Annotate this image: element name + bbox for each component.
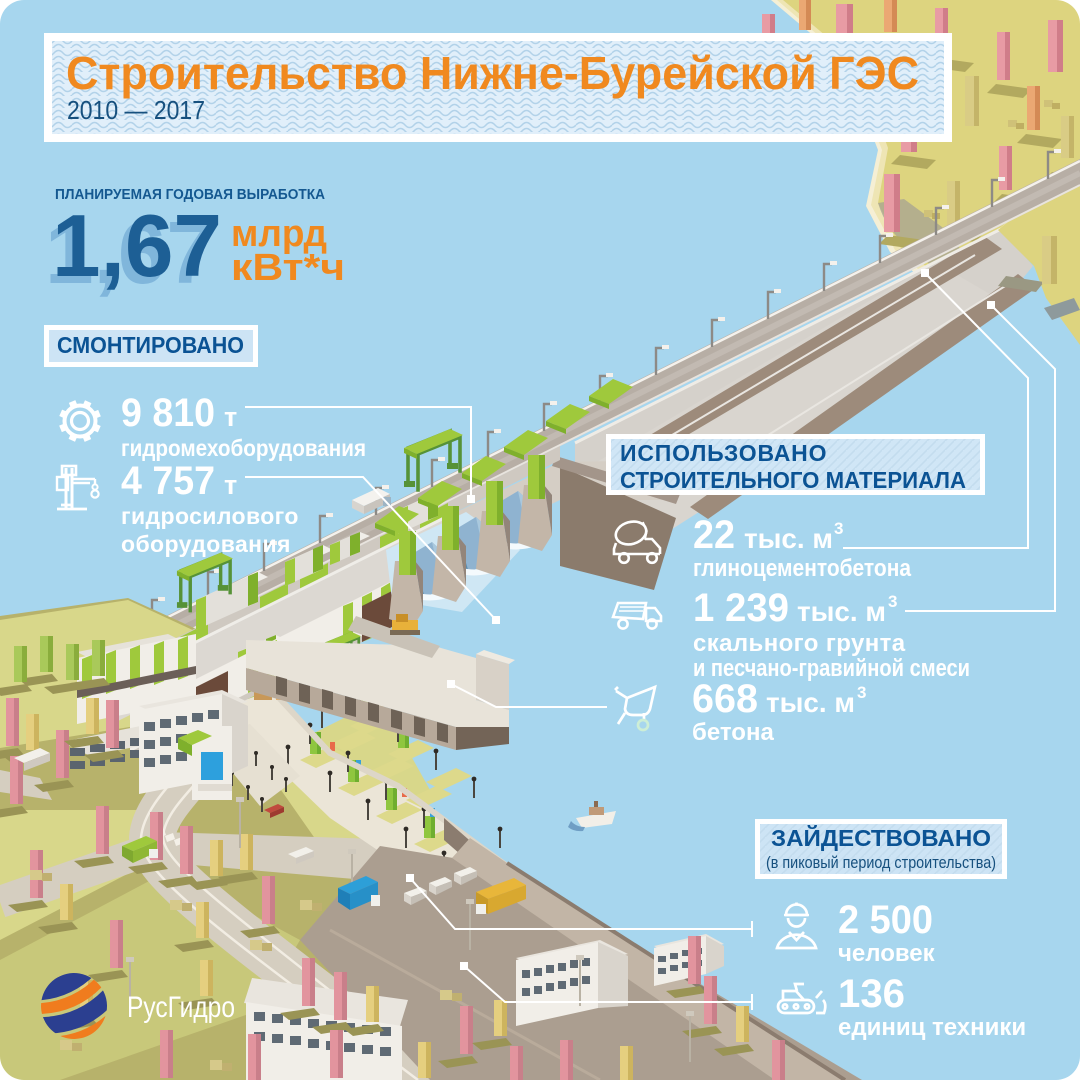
svg-text:гидромехоборудования: гидромехоборудования	[121, 435, 366, 461]
svg-text:22: 22	[693, 513, 735, 557]
svg-text:2 500: 2 500	[838, 898, 933, 942]
svg-text:3: 3	[888, 592, 897, 611]
svg-text:1 239: 1 239	[693, 586, 789, 630]
svg-text:ЗАЙДЕСТВОВАНО: ЗАЙДЕСТВОВАНО	[771, 824, 991, 851]
svg-text:т: т	[224, 402, 237, 432]
svg-text:глиноцементобетона: глиноцементобетона	[693, 555, 912, 582]
svg-text:единиц техники: единиц техники	[838, 1014, 1026, 1041]
svg-text:Строительство Нижне-Бурейской: Строительство Нижне-Бурейской ГЭС	[66, 47, 919, 99]
svg-text:ИСПОЛЬЗОВАНО: ИСПОЛЬЗОВАНО	[620, 440, 827, 466]
svg-text:2010 — 2017: 2010 — 2017	[67, 95, 205, 125]
svg-text:скального грунта: скального грунта	[693, 630, 906, 657]
svg-text:тыс. м: тыс. м	[744, 523, 833, 554]
svg-text:бетона: бетона	[692, 719, 774, 746]
svg-text:т: т	[224, 470, 237, 500]
svg-text:кВт*ч: кВт*ч	[231, 247, 345, 289]
svg-text:4 757: 4 757	[121, 459, 215, 503]
svg-text:РусГидро: РусГидро	[127, 991, 235, 1024]
svg-text:9 810: 9 810	[121, 391, 215, 435]
svg-text:3: 3	[834, 519, 843, 538]
svg-text:СМОНТИРОВАНО: СМОНТИРОВАНО	[57, 332, 244, 358]
svg-text:СТРОИТЕЛЬНОГО МАТЕРИАЛА: СТРОИТЕЛЬНОГО МАТЕРИАЛА	[620, 467, 966, 493]
svg-text:3: 3	[857, 683, 866, 702]
svg-text:тыс. м: тыс. м	[766, 687, 855, 718]
svg-text:человек: человек	[838, 940, 936, 967]
svg-text:тыс. м: тыс. м	[797, 596, 886, 627]
svg-text:668: 668	[692, 677, 758, 721]
svg-text:гидросилового: гидросилового	[121, 503, 299, 529]
svg-text:1,67: 1,67	[52, 196, 222, 295]
svg-text:136: 136	[838, 972, 905, 1016]
svg-text:оборудования: оборудования	[121, 531, 291, 557]
svg-text:(в пиковый период строительств: (в пиковый период строительства)	[766, 854, 996, 872]
